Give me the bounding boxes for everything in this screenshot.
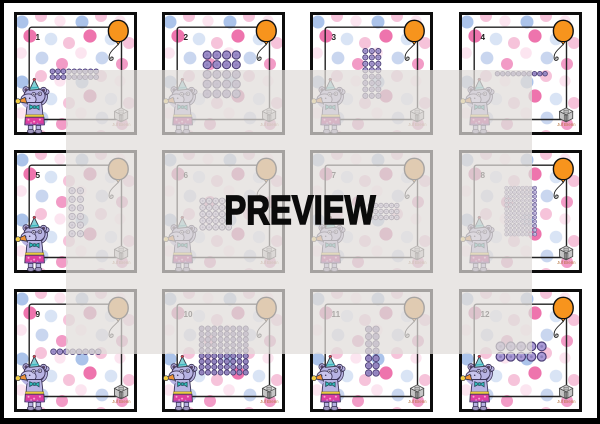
- svg-text:9: 9: [35, 310, 40, 319]
- svg-text:Juf Brenn: Juf Brenn: [557, 122, 576, 127]
- svg-text:5: 5: [35, 171, 40, 180]
- svg-text:Juf Brenn: Juf Brenn: [408, 399, 427, 404]
- svg-text:Juf Brenn: Juf Brenn: [112, 399, 131, 404]
- svg-text:3: 3: [332, 33, 337, 42]
- svg-text:Juf Brenn: Juf Brenn: [260, 399, 279, 404]
- svg-text:Juf Brenn: Juf Brenn: [557, 260, 576, 265]
- svg-text:Juf Brenn: Juf Brenn: [557, 399, 576, 404]
- svg-text:1: 1: [35, 33, 40, 42]
- svg-text:4: 4: [480, 33, 485, 42]
- svg-text:2: 2: [183, 33, 188, 42]
